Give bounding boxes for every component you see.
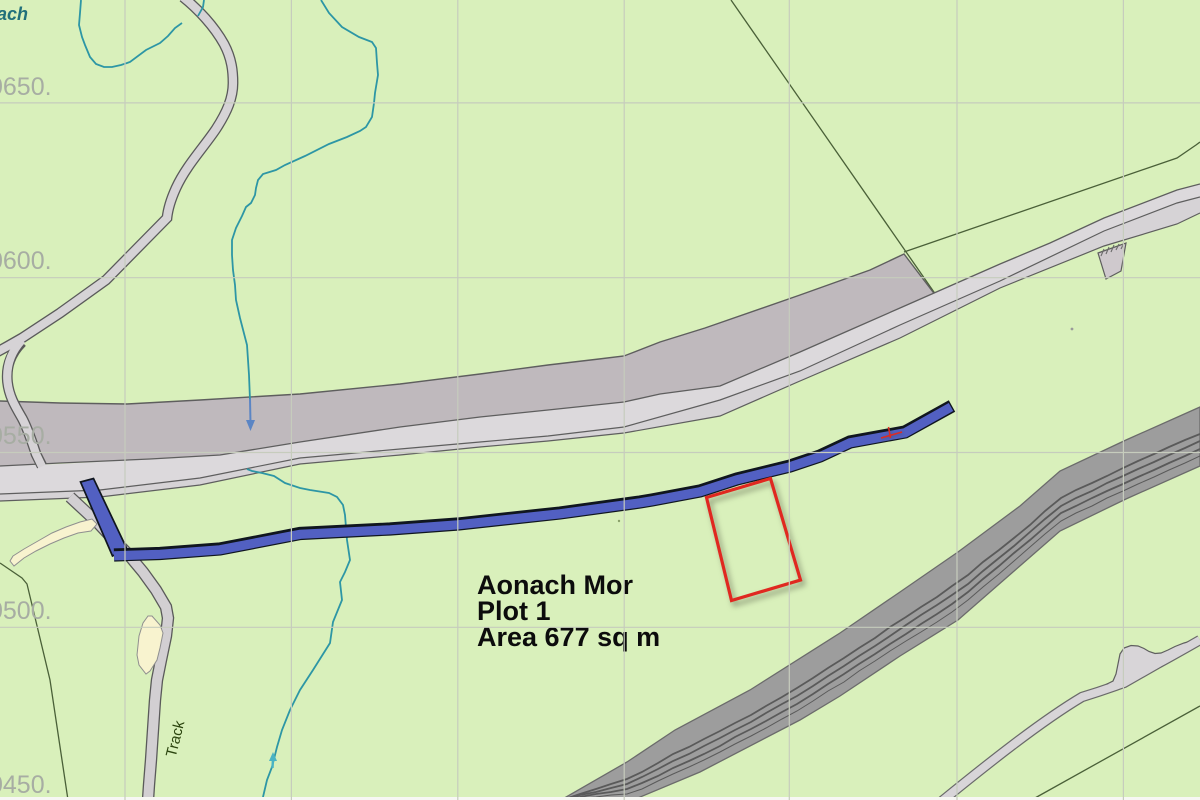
svg-text:0500.: 0500. — [0, 597, 52, 625]
svg-text:ach: ach — [0, 4, 28, 24]
svg-text:Area 677 sq m: Area 677 sq m — [477, 622, 660, 652]
svg-text:0450.: 0450. — [0, 771, 52, 799]
svg-text:0600.: 0600. — [0, 247, 52, 275]
svg-text:0650.: 0650. — [0, 73, 52, 101]
svg-text:0550.: 0550. — [0, 422, 52, 450]
